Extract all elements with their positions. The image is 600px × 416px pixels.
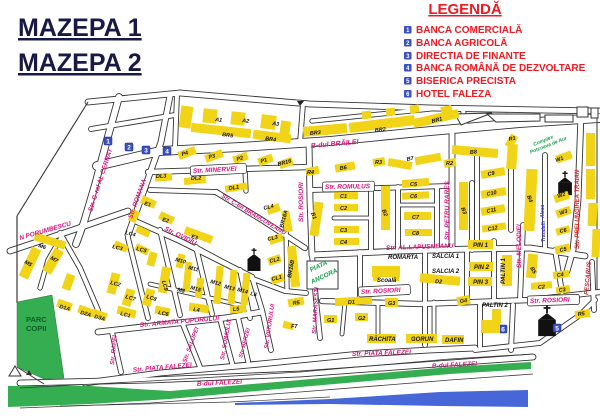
svg-text:C2: C2	[538, 284, 546, 291]
svg-text:C8: C8	[412, 231, 420, 237]
svg-text:DL3: DL3	[156, 173, 167, 180]
svg-text:4: 4	[165, 149, 169, 156]
svg-text:Str. ROSIORI: Str. ROSIORI	[298, 182, 305, 222]
svg-text:BANCA COMERCIALĂ: BANCA COMERCIALĂ	[416, 23, 522, 36]
svg-text:PIN 2: PIN 2	[474, 265, 490, 271]
svg-text:BANCA ROMÂNĂ DE DEZVOLTARE: BANCA ROMÂNĂ DE DEZVOLTARE	[416, 61, 586, 74]
svg-text:MAZEPA 1: MAZEPA 1	[18, 14, 142, 42]
svg-text:R3: R3	[375, 160, 382, 166]
svg-text:PARC: PARC	[26, 315, 47, 324]
svg-text:Aleea: Aleea	[540, 204, 546, 219]
svg-text:Str. PRELUNGIREA TRAIAN: Str. PRELUNGIREA TRAIAN	[575, 169, 581, 249]
svg-text:A3: A3	[271, 121, 280, 128]
svg-text:SALCIA 1: SALCIA 1	[432, 254, 460, 260]
svg-text:Str. PETRU RARES: Str. PETRU RARES	[444, 180, 451, 240]
svg-text:L4: L4	[193, 307, 200, 314]
svg-text:HOTEL FALEZA: HOTEL FALEZA	[416, 89, 491, 100]
svg-text:C6: C6	[410, 194, 418, 200]
svg-text:PIN 1: PIN 1	[473, 243, 489, 249]
svg-text:DAFIN: DAFIN	[445, 338, 464, 344]
svg-text:F7: F7	[291, 324, 298, 330]
svg-text:G2: G2	[358, 316, 365, 322]
svg-text:BANCA AGRICOLĂ: BANCA AGRICOLĂ	[416, 36, 507, 49]
svg-text:3: 3	[144, 148, 148, 155]
svg-text:GORUN: GORUN	[411, 337, 434, 343]
svg-text:R4: R4	[307, 170, 314, 176]
svg-text:C4: C4	[556, 272, 564, 279]
svg-text:MAZEPA 2: MAZEPA 2	[18, 49, 142, 77]
svg-text:C3: C3	[340, 228, 347, 234]
svg-text:DIRECTIA DE FINANTE: DIRECTIA DE FINANTE	[416, 51, 526, 62]
svg-text:C5: C5	[410, 182, 418, 188]
svg-text:Trandafir: Trandafir	[541, 219, 547, 242]
svg-text:PALTIN 2: PALTIN 2	[482, 303, 508, 309]
svg-text:BR2: BR2	[375, 127, 387, 134]
svg-text:C7: C7	[412, 215, 420, 221]
svg-text:BR3: BR3	[310, 130, 321, 137]
svg-text:PIN 3: PIN 3	[473, 280, 489, 286]
svg-text:C1: C1	[340, 194, 347, 200]
svg-text:R2: R2	[446, 161, 453, 167]
svg-text:D2: D2	[435, 279, 442, 285]
svg-text:G3: G3	[388, 301, 395, 307]
svg-text:SALCIA 2: SALCIA 2	[432, 269, 460, 275]
svg-text:RĂCHITA: RĂCHITA	[369, 336, 396, 343]
svg-text:Str. ROSIORI: Str. ROSIORI	[530, 297, 570, 305]
svg-text:1: 1	[106, 139, 110, 146]
svg-text:2: 2	[127, 145, 131, 152]
svg-text:C3: C3	[558, 287, 566, 294]
svg-text:A2: A2	[241, 118, 250, 125]
svg-text:Str. MELODIEI: Str. MELODIEI	[516, 224, 523, 268]
svg-text:LEGENDĂ: LEGENDĂ	[428, 1, 502, 18]
svg-text:C4: C4	[340, 240, 347, 246]
svg-text:PALTIN 1: PALTIN 1	[501, 258, 507, 284]
svg-text:G4: G4	[459, 298, 467, 305]
svg-text:6: 6	[501, 327, 505, 334]
svg-text:COPII: COPII	[26, 324, 46, 333]
svg-text:BISERICA PRECISTA: BISERICA PRECISTA	[416, 76, 516, 87]
svg-text:A1: A1	[214, 117, 223, 124]
svg-text:G1: G1	[327, 318, 334, 324]
svg-text:C2: C2	[340, 206, 347, 212]
svg-text:DL2: DL2	[191, 175, 202, 182]
svg-text:ROMARTA: ROMARTA	[388, 255, 418, 261]
svg-text:Str. ROMULUS: Str. ROMULUS	[325, 183, 371, 191]
svg-text:Scoală: Scoală	[377, 278, 397, 284]
svg-text:D1: D1	[348, 300, 355, 306]
svg-text:5: 5	[555, 326, 559, 333]
